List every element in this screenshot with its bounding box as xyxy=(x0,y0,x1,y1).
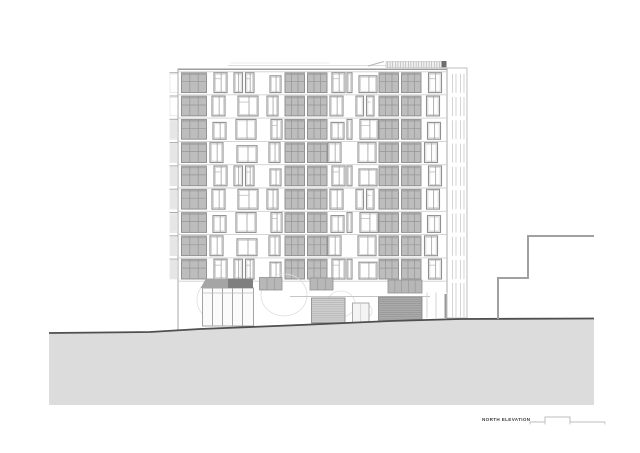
glazed-panel xyxy=(308,73,328,93)
window xyxy=(212,189,225,209)
window xyxy=(236,119,256,139)
window xyxy=(359,76,377,93)
window xyxy=(359,262,377,279)
glazed-panel xyxy=(182,166,207,186)
glazed-panel xyxy=(379,96,399,116)
window xyxy=(210,143,223,163)
window xyxy=(359,169,377,186)
glazed-panel xyxy=(182,143,207,163)
rooftop xyxy=(228,61,447,68)
drawing-sheet: NORTH ELEVATION xyxy=(0,0,640,453)
glazed-panel xyxy=(308,119,328,139)
glazed-panel xyxy=(285,166,305,186)
transom-window xyxy=(388,280,422,293)
window xyxy=(328,143,341,163)
glazed-panel xyxy=(379,73,399,93)
ground-floor xyxy=(197,274,448,326)
window xyxy=(428,216,441,233)
glazed-panel xyxy=(182,96,207,116)
glazed-panel xyxy=(285,189,305,209)
glazed-panel xyxy=(402,143,422,163)
glazed-panel xyxy=(402,96,422,116)
glazed-panel xyxy=(308,259,328,279)
neighbor-building-outline xyxy=(498,236,594,319)
window xyxy=(331,122,344,139)
glazed-panel xyxy=(285,119,305,139)
glazed-panel xyxy=(285,73,305,93)
window xyxy=(429,259,442,279)
window xyxy=(237,146,257,163)
roof-louver-band xyxy=(386,62,442,68)
window xyxy=(428,122,441,139)
facade-windows xyxy=(182,73,442,279)
transom-window xyxy=(260,278,283,291)
glazed-panel xyxy=(379,259,399,279)
glazed-panel xyxy=(285,96,305,116)
ground-plane xyxy=(49,319,594,406)
glazed-panel xyxy=(379,119,399,139)
window xyxy=(347,259,352,279)
window xyxy=(429,166,442,186)
glazed-panel xyxy=(379,189,399,209)
glazed-panel xyxy=(379,166,399,186)
glazed-panel xyxy=(285,143,305,163)
window xyxy=(347,73,352,93)
glazed-panel xyxy=(379,213,399,233)
window xyxy=(360,119,378,139)
window xyxy=(238,96,258,116)
glazed-panel xyxy=(182,119,207,139)
glazed-panel xyxy=(402,189,422,209)
window xyxy=(425,236,438,256)
glazed-panel xyxy=(402,236,422,256)
glazed-panel xyxy=(182,189,207,209)
window xyxy=(238,189,258,209)
window xyxy=(425,143,438,163)
window xyxy=(347,119,352,139)
window xyxy=(331,216,344,233)
balcony-ledges xyxy=(170,73,179,279)
window xyxy=(214,259,227,279)
glazed-panel xyxy=(308,96,328,116)
window xyxy=(210,236,223,256)
window xyxy=(236,213,256,233)
glazed-panel xyxy=(402,73,422,93)
glazed-panel xyxy=(182,236,207,256)
window xyxy=(358,143,376,163)
window xyxy=(427,189,440,209)
glazed-panel xyxy=(308,236,328,256)
window xyxy=(328,236,341,256)
garage-door xyxy=(312,298,346,323)
glazed-panel xyxy=(182,73,207,93)
window xyxy=(429,73,442,93)
glazed-panel xyxy=(308,143,328,163)
window xyxy=(214,73,227,93)
glazed-panel xyxy=(285,213,305,233)
glazed-panel xyxy=(308,189,328,209)
transom-window xyxy=(310,278,333,290)
window xyxy=(332,166,345,186)
window xyxy=(330,96,343,116)
window xyxy=(332,259,345,279)
window xyxy=(212,96,225,116)
window xyxy=(427,96,440,116)
glazed-panel xyxy=(308,166,328,186)
window xyxy=(332,73,345,93)
glazed-panel xyxy=(402,259,422,279)
window xyxy=(330,189,343,209)
glazed-panel xyxy=(402,213,422,233)
glazed-panel xyxy=(182,259,207,279)
glazed-panel xyxy=(182,213,207,233)
storefront-glazing xyxy=(203,288,254,326)
window xyxy=(237,239,257,256)
window xyxy=(347,213,352,233)
drawing-title: NORTH ELEVATION xyxy=(482,417,530,423)
scale-bar xyxy=(530,417,605,425)
glazed-panel xyxy=(285,236,305,256)
window xyxy=(213,122,226,139)
glazed-panel xyxy=(402,166,422,186)
window xyxy=(214,166,227,186)
glazed-panel xyxy=(379,236,399,256)
window xyxy=(213,216,226,233)
garage-door xyxy=(379,297,423,322)
glazed-panel xyxy=(379,143,399,163)
glazed-panel xyxy=(308,213,328,233)
north-elevation-drawing xyxy=(0,0,640,453)
glazed-panel xyxy=(402,119,422,139)
window xyxy=(347,166,352,186)
window xyxy=(360,213,378,233)
neighbor xyxy=(498,236,594,319)
window xyxy=(358,236,376,256)
